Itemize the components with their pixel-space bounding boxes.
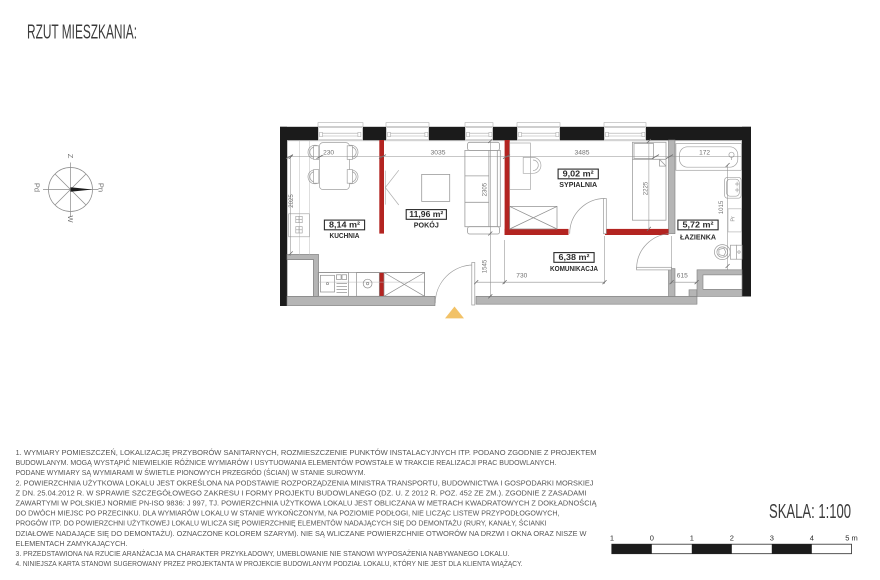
svg-text:PROGÓW ITP. DO POWIERZCHNI UŻY: PROGÓW ITP. DO POWIERZCHNI UŻYTKOWEJ LOK…: [16, 519, 547, 528]
svg-text:2. POWIERZCHNIA UŻYTKOWA LOKAL: 2. POWIERZCHNIA UŻYTKOWA LOKALU JEST OKR…: [16, 478, 594, 487]
svg-text:8,14 m²: 8,14 m²: [329, 221, 360, 230]
svg-text:SYPIALNIA: SYPIALNIA: [559, 180, 598, 189]
svg-text:W: W: [66, 215, 75, 223]
svg-text:SKALA: 1:100: SKALA: 1:100: [769, 501, 851, 523]
svg-text:0: 0: [650, 534, 654, 543]
svg-text:5,72 m²: 5,72 m²: [683, 221, 714, 230]
svg-text:230: 230: [323, 149, 334, 156]
svg-text:1: 1: [690, 534, 694, 543]
svg-text:Z: Z: [66, 154, 75, 159]
svg-text:730: 730: [516, 273, 527, 280]
svg-text:Pd: Pd: [33, 183, 42, 192]
svg-text:3: 3: [770, 534, 774, 543]
svg-text:5 m: 5 m: [845, 534, 858, 543]
svg-text:Z DN. 25.04.2012 R. W SPRAWIE: Z DN. 25.04.2012 R. W SPRAWIE SZCZEGÓŁOW…: [16, 488, 587, 497]
svg-text:Pn: Pn: [97, 183, 106, 192]
svg-text:6,38 m²: 6,38 m²: [559, 253, 590, 262]
svg-text:KOMUNIKACJA: KOMUNIKACJA: [550, 264, 598, 273]
svg-text:2: 2: [730, 534, 734, 543]
svg-text:PODANE WYMIARY SĄ WYMIARAMI W: PODANE WYMIARY SĄ WYMIARAMI W ŚWIETLE PI…: [16, 468, 366, 477]
svg-text:RZUT MIESZKANIA:: RZUT MIESZKANIA:: [27, 20, 137, 43]
svg-text:2025: 2025: [288, 194, 295, 208]
svg-text:BUDOWLANYM. MOGĄ WYSTĄPIĆ NIEW: BUDOWLANYM. MOGĄ WYSTĄPIĆ NIEWIELKIE RÓŻ…: [16, 458, 557, 467]
svg-text:4: 4: [810, 534, 814, 543]
svg-text:3485: 3485: [575, 149, 590, 156]
svg-text:2305: 2305: [481, 182, 488, 196]
svg-text:615: 615: [677, 273, 688, 280]
svg-text:4. NINIEJSZA KARTA STANOWI SUG: 4. NINIEJSZA KARTA STANOWI SUGEROWANY PR…: [16, 559, 523, 568]
svg-text:Pr: Pr: [730, 216, 736, 222]
svg-text:1545: 1545: [481, 259, 488, 273]
svg-text:ELEMENTACH ZAMYKAJĄCYCH.: ELEMENTACH ZAMYKAJĄCYCH.: [16, 539, 128, 548]
svg-text:DO DWÓCH MIEJSC PO PRZECINKU.: DO DWÓCH MIEJSC PO PRZECINKU. DLA WYMIAR…: [16, 509, 560, 518]
svg-text:1: 1: [610, 534, 614, 543]
svg-text:POKÓJ: POKÓJ: [414, 220, 439, 229]
svg-text:1. WYMIARY POMIESZCZEŃ, LOKALI: 1. WYMIARY POMIESZCZEŃ, LOKALIZACJĘ PRZY…: [16, 448, 597, 457]
svg-text:3. PRZEDSTAWIONA NA RZUCIE ARA: 3. PRZEDSTAWIONA NA RZUCIE ARANŻACJA MA …: [16, 549, 510, 558]
svg-text:172: 172: [699, 150, 710, 157]
svg-text:DZIAŁOWE NADAJĄCE SIĘ DO DEMON: DZIAŁOWE NADAJĄCE SIĘ DO DEMONTAŻU). OZN…: [16, 529, 587, 538]
svg-text:ZAWARTYMI W POLSKIEJ NORMIE PN: ZAWARTYMI W POLSKIEJ NORMIE PN-ISO 9836:…: [16, 499, 597, 508]
svg-text:11,96 m²: 11,96 m²: [409, 210, 443, 219]
svg-text:1015: 1015: [718, 200, 725, 214]
svg-text:9,02 m²: 9,02 m²: [563, 170, 594, 179]
svg-text:3035: 3035: [431, 149, 446, 156]
svg-text:ŁAZIENKA: ŁAZIENKA: [680, 232, 717, 241]
svg-text:KUCHNIA: KUCHNIA: [330, 231, 360, 240]
svg-text:2225: 2225: [643, 181, 650, 195]
